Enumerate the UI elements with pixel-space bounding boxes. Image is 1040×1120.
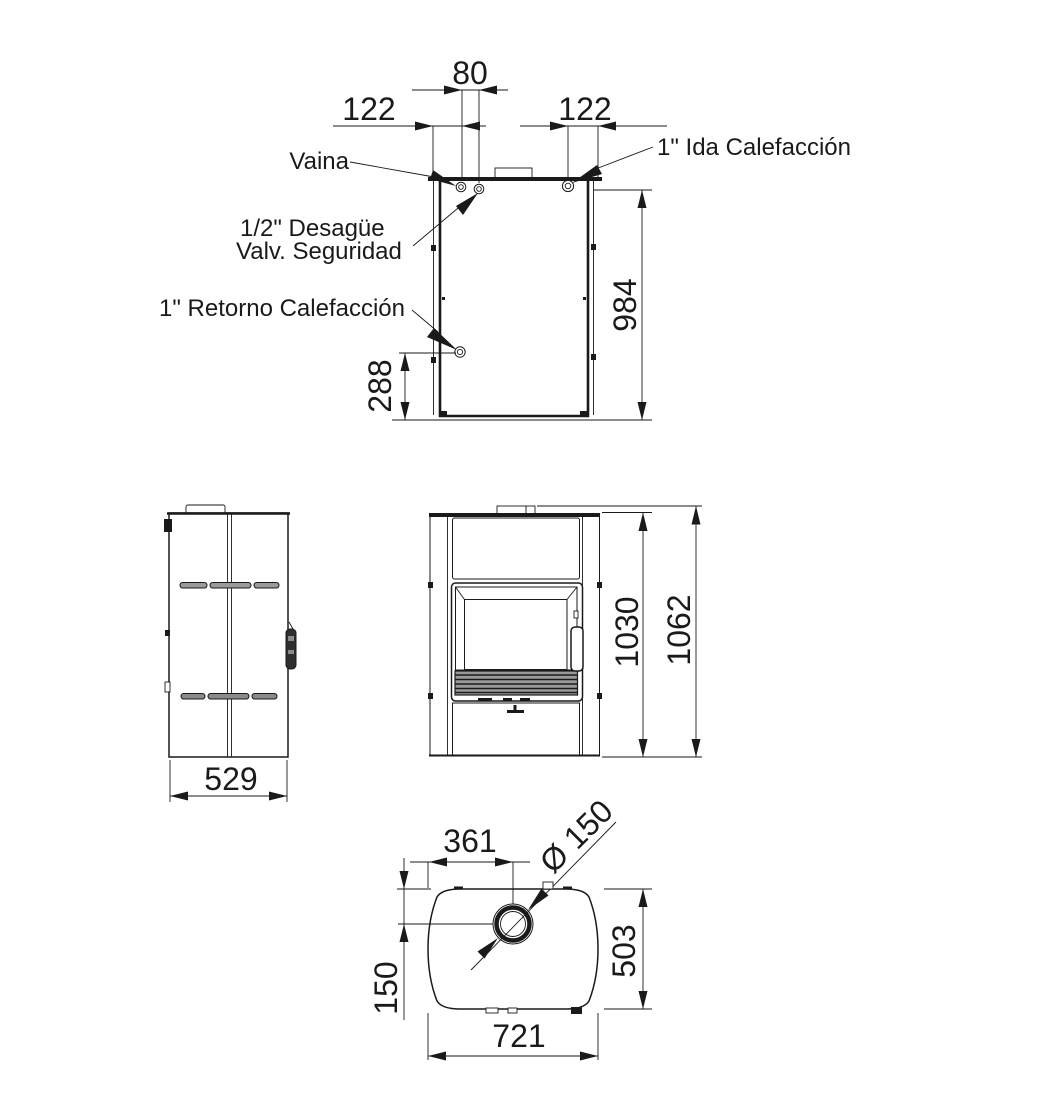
vaina-fitting [456, 182, 466, 192]
desague-label-line2: Valv. Seguridad [236, 238, 402, 265]
dim-288-text: 288 [362, 359, 398, 412]
plan-view: Ø 150 361 150 503 [368, 793, 652, 1061]
front-view: 1030 1062 [428, 506, 702, 757]
front-door [452, 583, 584, 701]
side-body [169, 513, 288, 757]
plan-dim-150: 150 [368, 858, 431, 1020]
dim-361-text: 361 [443, 823, 496, 859]
desague-leader-arrow [456, 193, 478, 215]
front-bottom-panel [453, 698, 580, 755]
dim-diameter-text: Ø 150 [533, 793, 620, 880]
dim-150-text: 150 [368, 961, 404, 1014]
side-view: 529 [164, 505, 296, 802]
side-louvre-row-bottom [181, 694, 277, 700]
rear-fittings [455, 180, 574, 357]
front-upper-panel [453, 518, 580, 579]
rear-view: Vaina 1/2" Desagüe Valv. Seguridad 1" Re… [159, 55, 851, 420]
ida-label: 1" Ida Calefacción [657, 134, 851, 161]
desague-fitting [474, 184, 484, 194]
door-grille [455, 671, 578, 695]
dim-1030-text: 1030 [609, 596, 645, 667]
vaina-label: Vaina [289, 148, 349, 175]
rear-dim-984: 984 [392, 190, 652, 420]
rear-body-outline [431, 181, 596, 417]
rear-dim-122-right: 122 [520, 91, 667, 179]
retorno-label: 1" Retorno Calefacción [159, 295, 405, 322]
plan-flue-circle [493, 904, 533, 944]
dim-1062-text: 1062 [661, 594, 697, 665]
door-handle [571, 627, 583, 671]
stove-technical-drawing: Vaina 1/2" Desagüe Valv. Seguridad 1" Re… [0, 0, 1040, 1120]
dim-503-text: 503 [606, 924, 642, 977]
side-louvre-row-top [180, 583, 279, 589]
plan-dim-361: 361 [410, 823, 530, 888]
dim-122-left-text: 122 [342, 91, 395, 127]
ida-fitting [562, 180, 573, 191]
rear-dim-80: 80 [412, 55, 508, 183]
plan-dim-721: 721 [428, 1013, 598, 1061]
ash-drawer-knob [507, 710, 524, 713]
rear-callouts: Vaina 1/2" Desagüe Valv. Seguridad 1" Re… [159, 134, 851, 350]
retorno-fitting [455, 347, 465, 357]
plan-dim-503: 503 [604, 889, 652, 1009]
rear-dim-122-left: 122 [333, 91, 486, 177]
dim-122-right-text: 122 [558, 91, 611, 127]
dim-529-text: 529 [204, 761, 257, 797]
front-dim-1030: 1030 [602, 513, 652, 758]
dim-984-text: 984 [607, 278, 643, 331]
retorno-leader-arrow [427, 328, 457, 350]
front-top-plate [429, 513, 600, 517]
dim-80-text: 80 [452, 55, 488, 91]
side-dim-529: 529 [170, 760, 287, 802]
drawing-svg: Vaina 1/2" Desagüe Valv. Seguridad 1" Re… [0, 0, 1040, 1120]
rear-dim-288: 288 [362, 353, 456, 420]
dim-721-text: 721 [492, 1018, 545, 1054]
